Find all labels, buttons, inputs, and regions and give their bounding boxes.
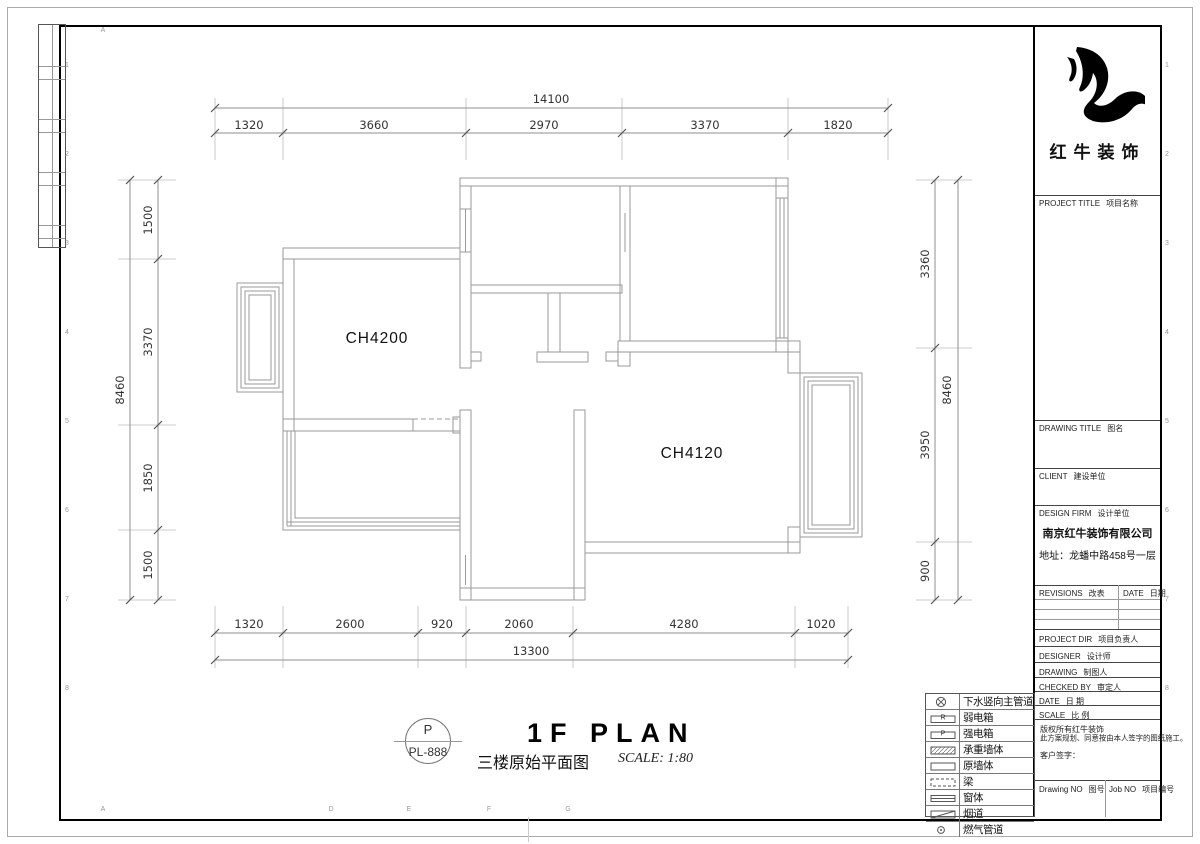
terrace-window (283, 431, 460, 530)
legend-label: 窗体 (960, 790, 983, 805)
dim-bottom-seg: 4280 (669, 617, 698, 631)
legend-row: R 弱电箱 (926, 709, 1034, 725)
dim-left-seg: 1500 (141, 205, 155, 234)
drawing-stamp: P PL-888 (394, 718, 462, 766)
dim-bottom-seg: 2060 (504, 617, 533, 631)
extension-lines (118, 98, 972, 668)
company-name: 南京红牛装饰有限公司 (1035, 525, 1160, 541)
legend-row: 梁 (926, 773, 1034, 789)
designer-row: DESIGNER设计师 (1039, 651, 1111, 662)
legend-label: 承重墙体 (960, 742, 1003, 757)
dim-left-seg: 1850 (141, 463, 155, 492)
dim-top-total: 14100 (533, 92, 570, 106)
dim-right-seg: 3360 (918, 249, 932, 278)
drawing-no-label: Drawing NO图号 (1039, 784, 1105, 795)
legend-row: 下水竖向主管道 (926, 694, 1034, 709)
dim-bottom-seg: 1320 (234, 617, 263, 631)
client-label: CLIENT建设单位 (1039, 471, 1105, 482)
dimension-labels: 14100 1320 3660 2970 3370 1820 1320 2600… (113, 92, 954, 658)
legend-label: 烟道 (960, 806, 983, 821)
svg-text:R: R (940, 714, 945, 721)
legend-label: 弱电箱 (960, 710, 993, 725)
stamp-code: PL-888 (394, 745, 462, 759)
dim-right-seg: 3950 (918, 430, 932, 459)
stamp-letter: P (394, 722, 462, 737)
window-icon (926, 790, 960, 805)
company-logo-text: 红牛装饰 (1035, 138, 1160, 163)
dim-bottom-total: 13300 (513, 644, 550, 658)
dim-bottom-seg: 920 (431, 617, 453, 631)
design-firm-label: DESIGN FIRM设计单位 (1039, 508, 1129, 519)
company-address: 地址：龙蟠中路458号一层 (1035, 547, 1160, 562)
legend-row: 原墙体 (926, 757, 1034, 773)
room-label-ch4120: CH4120 (661, 445, 724, 462)
original-wall-icon (926, 758, 960, 773)
legend-label: 梁 (960, 774, 973, 789)
legend-label: 燃气管道 (960, 822, 1003, 837)
dim-left-total: 8460 (113, 375, 127, 404)
drawing-title-label: DRAWING TITLE图名 (1039, 423, 1123, 434)
window-mullions (466, 198, 785, 585)
drain-pipe-icon (926, 694, 960, 709)
dim-right-total: 8460 (940, 375, 954, 404)
left-balcony-window (237, 283, 283, 392)
revisions-date-label: DATE日期 (1123, 588, 1166, 599)
weak-current-box-icon: R (926, 710, 960, 725)
dim-right-seg: 900 (918, 560, 932, 582)
dim-left-seg: 3370 (141, 327, 155, 356)
room-label-ch4200: CH4200 (346, 330, 409, 347)
title-block: 红牛装饰 PROJECT TITLE项目名称 DRAWING TITLE图名 C… (1035, 25, 1160, 817)
legend-row: 烟道 (926, 805, 1034, 821)
right-bay-window (800, 373, 862, 537)
legend-table: 下水竖向主管道 R 弱电箱 P 强电箱 承重墙体 (925, 693, 1035, 817)
strong-current-box-icon: P (926, 726, 960, 741)
load-bearing-wall-icon (926, 742, 960, 757)
company-logo-icon (1053, 43, 1145, 133)
dim-top-seg: 2970 (529, 118, 558, 132)
job-no-label: Job NO项目编号 (1109, 784, 1174, 795)
dim-bottom-seg: 1020 (806, 617, 835, 631)
dim-bottom-seg: 2600 (335, 617, 364, 631)
svg-text:P: P (940, 730, 945, 737)
construction-note: 此方案规划、同意按由本人签字的图纸施工。 (1040, 733, 1187, 743)
client-signature-note: 客户签字： (1040, 750, 1080, 761)
dim-top-seg: 1820 (823, 118, 852, 132)
plan-walls (283, 178, 800, 600)
legend-row: 承重墙体 (926, 741, 1034, 757)
legend-label: 强电箱 (960, 726, 993, 741)
project-title-label: PROJECT TITLE项目名称 (1039, 198, 1138, 209)
drawing-sheet: A A D E F G 1 2 3 4 5 6 7 8 1 2 3 4 5 6 … (0, 0, 1200, 844)
plan-subtitle: 三楼原始平面图 (477, 749, 589, 773)
beam-icon (926, 774, 960, 789)
dim-left-seg: 1500 (141, 550, 155, 579)
legend-row: 燃气管道 (926, 821, 1034, 837)
plan-title: 1F PLAN (527, 718, 696, 749)
flue-icon (926, 806, 960, 821)
room-labels: CH4200 CH4120 (346, 330, 724, 462)
legend-row: P 强电箱 (926, 725, 1034, 741)
plan-scale: SCALE: 1:80 (618, 751, 693, 767)
project-dir-row: PROJECT DIR项目负责人 (1039, 634, 1138, 645)
dim-top-seg: 3370 (690, 118, 719, 132)
legend-label: 下水竖向主管道 (960, 694, 1033, 709)
dim-top-seg: 3660 (359, 118, 388, 132)
gas-pipe-icon (926, 822, 960, 837)
dim-top-seg: 1320 (234, 118, 263, 132)
legend-label: 原墙体 (960, 758, 993, 773)
revisions-label: REVISIONS改表 (1039, 588, 1105, 599)
legend-row: 窗体 (926, 789, 1034, 805)
